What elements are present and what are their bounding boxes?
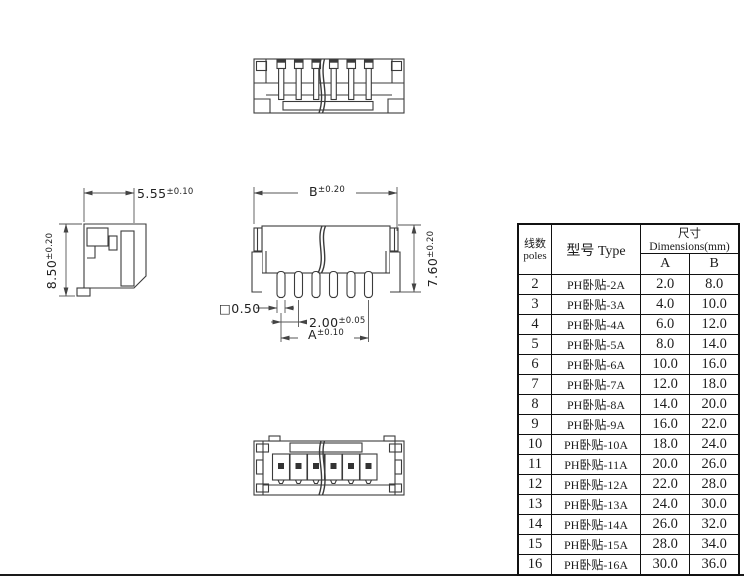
cell-poles: 7	[518, 374, 552, 394]
cell-dim-b: 12.0	[690, 314, 739, 334]
cell-dim-b: 24.0	[690, 434, 739, 454]
cell-poles: 10	[518, 434, 552, 454]
cell-type: PH卧贴-3A	[552, 294, 641, 314]
cell-poles: 6	[518, 354, 552, 374]
cell-dim-a: 6.0	[641, 314, 690, 334]
cell-dim-b: 10.0	[690, 294, 739, 314]
table-row: 15PH卧贴-15A28.034.0	[518, 534, 739, 554]
table-row: 3PH卧贴-3A4.010.0	[518, 294, 739, 314]
dim-value: 5.55	[137, 186, 166, 201]
cell-type: PH卧贴-5A	[552, 334, 641, 354]
cell-type: PH卧贴-13A	[552, 494, 641, 514]
cell-poles: 2	[518, 275, 552, 295]
cell-dim-a: 30.0	[641, 554, 690, 575]
cell-dim-b: 34.0	[690, 534, 739, 554]
spec-table-body: 2PH卧贴-2A2.08.03PH卧贴-3A4.010.04PH卧贴-4A6.0…	[518, 275, 739, 576]
cell-poles: 3	[518, 294, 552, 314]
table-row: 16PH卧贴-16A30.036.0	[518, 554, 739, 575]
cell-dim-b: 36.0	[690, 554, 739, 575]
cell-type: PH卧贴-11A	[552, 454, 641, 474]
cell-poles: 15	[518, 534, 552, 554]
table-row: 14PH卧贴-14A26.032.0	[518, 514, 739, 534]
table-row: 9PH卧贴-9A16.022.0	[518, 414, 739, 434]
table-row: 6PH卧贴-6A10.016.0	[518, 354, 739, 374]
cell-dim-a: 12.0	[641, 374, 690, 394]
cell-type: PH卧贴-10A	[552, 434, 641, 454]
dim-value: 7.60	[425, 258, 440, 287]
header-col-a: A	[641, 254, 690, 275]
cell-type: PH卧贴-7A	[552, 374, 641, 394]
cell-poles: 9	[518, 414, 552, 434]
cell-type: PH卧贴-2A	[552, 275, 641, 295]
header-poles: 线数poles	[518, 224, 552, 275]
cell-poles: 14	[518, 514, 552, 534]
dim-pin-size-label: □0.50	[219, 301, 254, 316]
cell-dim-a: 18.0	[641, 434, 690, 454]
cell-poles: 13	[518, 494, 552, 514]
header-type: 型号 Type	[552, 224, 641, 275]
cell-type: PH卧贴-6A	[552, 354, 641, 374]
table-row: 5PH卧贴-5A8.014.0	[518, 334, 739, 354]
cell-dim-b: 16.0	[690, 354, 739, 374]
cell-dim-a: 28.0	[641, 534, 690, 554]
side-view	[59, 188, 146, 296]
table-row: 12PH卧贴-12A22.028.0	[518, 474, 739, 494]
cell-dim-a: 24.0	[641, 494, 690, 514]
connector-datasheet: 5.55±0.10 8.50±0.20 B±0.20 7.60±0.20 □0.…	[0, 0, 744, 582]
spec-table: 线数poles 型号 Type 尺寸 Dimensions(mm) A B 2P…	[517, 223, 740, 576]
table-row: 8PH卧贴-8A14.020.0	[518, 394, 739, 414]
table-row: 11PH卧贴-11A20.026.0	[518, 454, 739, 474]
cell-dim-b: 14.0	[690, 334, 739, 354]
cell-dim-a: 14.0	[641, 394, 690, 414]
cell-type: PH卧贴-16A	[552, 554, 641, 575]
table-row: 13PH卧贴-13A24.030.0	[518, 494, 739, 514]
dim-tolerance: ±0.05	[338, 316, 365, 326]
cell-type: PH卧贴-4A	[552, 314, 641, 334]
cell-dim-a: 2.0	[641, 275, 690, 295]
cell-dim-b: 32.0	[690, 514, 739, 534]
dim-tolerance: ±0.10	[317, 328, 344, 338]
dim-tolerance: ±0.20	[426, 231, 436, 258]
dim-side-height-label: 8.50±0.20	[44, 223, 62, 299]
header-dimensions: 尺寸 Dimensions(mm)	[641, 224, 740, 254]
cell-dim-b: 28.0	[690, 474, 739, 494]
header-poles-zh: 线数	[524, 238, 546, 250]
table-row: 7PH卧贴-7A12.018.0	[518, 374, 739, 394]
header-col-b: B	[690, 254, 739, 275]
cell-poles: 8	[518, 394, 552, 414]
cell-dim-b: 26.0	[690, 454, 739, 474]
cell-dim-a: 22.0	[641, 474, 690, 494]
cell-type: PH卧贴-9A	[552, 414, 641, 434]
dim-value: A	[308, 327, 317, 342]
cell-dim-a: 16.0	[641, 414, 690, 434]
cell-type: PH卧贴-12A	[552, 474, 641, 494]
table-row: 4PH卧贴-4A6.012.0	[518, 314, 739, 334]
cell-type: PH卧贴-14A	[552, 514, 641, 534]
cell-dim-b: 20.0	[690, 394, 739, 414]
cell-dim-b: 8.0	[690, 275, 739, 295]
dim-tolerance: ±0.10	[166, 187, 193, 197]
dim-pin-span-label: A±0.10	[298, 327, 354, 345]
cell-poles: 5	[518, 334, 552, 354]
bottom-view	[254, 436, 404, 495]
cell-type: PH卧贴-8A	[552, 394, 641, 414]
dim-front-height-label: 7.60±0.20	[425, 221, 443, 297]
cell-dim-a: 20.0	[641, 454, 690, 474]
table-row: 2PH卧贴-2A2.08.0	[518, 275, 739, 295]
cell-poles: 4	[518, 314, 552, 334]
dim-value: B	[309, 184, 318, 199]
cell-dim-b: 30.0	[690, 494, 739, 514]
header-poles-en: poles	[523, 250, 546, 262]
dim-value: □0.50	[219, 301, 261, 316]
dim-tolerance: ±0.20	[318, 185, 345, 195]
dim-side-width-label: 5.55±0.10	[137, 186, 194, 204]
cell-type: PH卧贴-15A	[552, 534, 641, 554]
cell-dim-a: 10.0	[641, 354, 690, 374]
cell-dim-b: 22.0	[690, 414, 739, 434]
cell-dim-a: 4.0	[641, 294, 690, 314]
dim-tolerance: ±0.20	[45, 233, 55, 260]
cell-poles: 11	[518, 454, 552, 474]
dim-value: 8.50	[44, 260, 59, 289]
top-view	[254, 59, 404, 113]
table-row: 10PH卧贴-10A18.024.0	[518, 434, 739, 454]
cell-poles: 16	[518, 554, 552, 575]
cell-dim-a: 26.0	[641, 514, 690, 534]
dim-front-width-label: B±0.20	[298, 184, 356, 202]
cell-dim-a: 8.0	[641, 334, 690, 354]
cell-poles: 12	[518, 474, 552, 494]
cell-dim-b: 18.0	[690, 374, 739, 394]
